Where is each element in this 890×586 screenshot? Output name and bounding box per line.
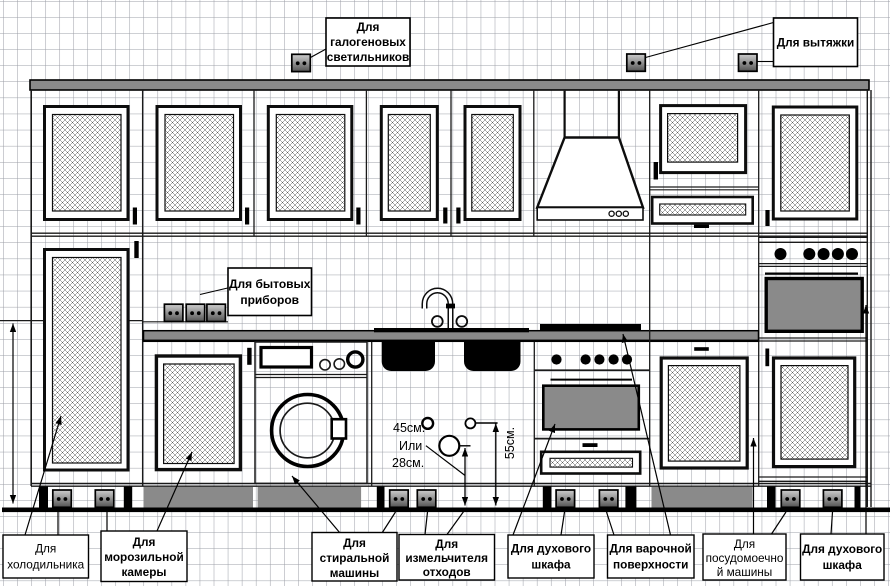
- svg-text:28см.: 28см.: [392, 456, 424, 470]
- svg-text:стиральной: стиральной: [320, 551, 390, 565]
- svg-text:посудомоечно: посудомоечно: [706, 551, 784, 565]
- svg-text:Для духового: Для духового: [802, 542, 882, 556]
- svg-text:шкафа: шкафа: [531, 558, 571, 572]
- svg-text:Для бытовых: Для бытовых: [229, 277, 311, 291]
- svg-text:Для: Для: [435, 537, 458, 551]
- svg-text:камеры: камеры: [121, 565, 166, 579]
- svg-text:галогеновых: галогеновых: [330, 35, 406, 49]
- svg-text:поверхности: поверхности: [613, 558, 688, 572]
- svg-text:Для: Для: [357, 20, 380, 34]
- svg-text:измельчителя: измельчителя: [405, 551, 488, 565]
- svg-text:Для: Для: [343, 536, 366, 550]
- svg-text:Для варочной: Для варочной: [610, 542, 692, 556]
- svg-text:морозильной: морозильной: [104, 550, 183, 564]
- svg-text:холодильника: холодильника: [7, 558, 84, 572]
- svg-text:Для: Для: [734, 537, 755, 551]
- svg-text:машины: машины: [330, 566, 379, 580]
- svg-text:й машины: й машины: [717, 565, 773, 579]
- svg-text:шкафа: шкафа: [823, 558, 863, 572]
- svg-text:приборов: приборов: [240, 293, 299, 307]
- svg-text:светильников: светильников: [327, 50, 409, 64]
- svg-text:Или: Или: [399, 439, 422, 453]
- svg-text:Для вытяжки: Для вытяжки: [777, 36, 855, 50]
- svg-text:Для: Для: [35, 542, 56, 556]
- svg-text:55см.: 55см.: [503, 427, 517, 459]
- svg-text:Для духового: Для духового: [511, 542, 591, 556]
- svg-text:отходов: отходов: [423, 565, 471, 579]
- svg-text:Для: Для: [133, 535, 156, 549]
- svg-text:45см.: 45см.: [393, 421, 425, 435]
